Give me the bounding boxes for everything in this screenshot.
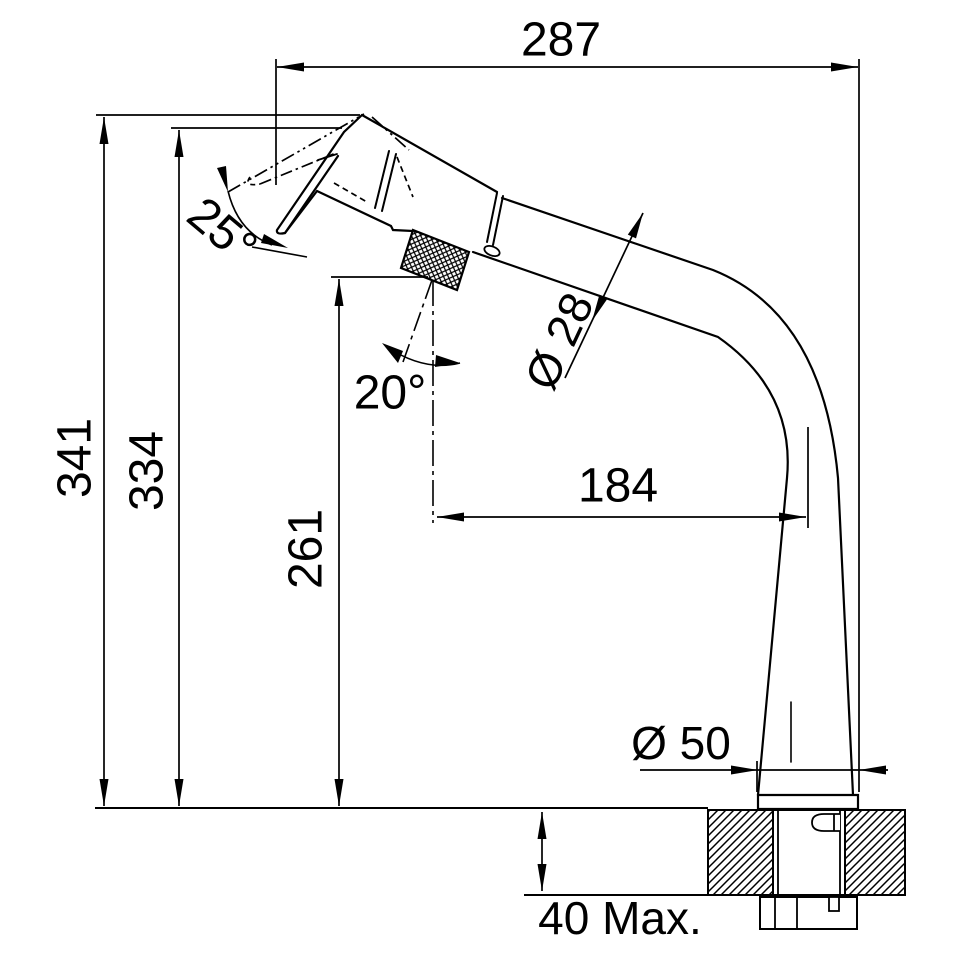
dim-label-261: 261 [280, 509, 333, 589]
dim-287-arrow-right [831, 63, 858, 72]
spray-head-bottom-edge [285, 191, 413, 233]
dim-334-arrow-up [175, 130, 184, 157]
phantom-tip-cap [248, 177, 260, 185]
faucet-outline [277, 115, 858, 809]
angle-label-20: 20° [354, 367, 427, 420]
spout-inner-edge [473, 252, 788, 795]
dim-184-arrow-right [779, 513, 806, 522]
dim-label-184: 184 [578, 460, 658, 513]
knurled-knob [401, 230, 469, 290]
dim-287-arrow-left [277, 63, 304, 72]
countertop [708, 810, 905, 895]
phantom-inner-1 [397, 157, 413, 197]
mounting-nut [760, 897, 857, 929]
dim-40max-arrow-up [538, 812, 547, 839]
dim-40max-arrow-down [538, 864, 547, 891]
angle-25-arrow-top [217, 166, 228, 192]
base-flange [758, 795, 858, 809]
phantom-head-right [372, 117, 409, 150]
knob-body [401, 230, 469, 290]
dim-334-arrow-down [175, 779, 184, 806]
hose-clip [812, 814, 840, 831]
dim-40max [524, 812, 708, 895]
counter-hatch-right [845, 810, 905, 895]
dim-label-341: 341 [49, 418, 102, 498]
dim-label-dia50: Ø 50 [631, 717, 731, 769]
dim-dia50-arrow-right [859, 766, 886, 775]
phantom-lower-edge [260, 153, 336, 184]
angle-label-25: 25° [177, 187, 267, 274]
dim-label-dia28: Ø 28 [514, 285, 603, 397]
dim-label-287: 287 [521, 14, 601, 67]
dim-184-arrow-left [437, 513, 464, 522]
dim-261 [331, 277, 428, 806]
dim-261-arrow-down [335, 779, 344, 806]
dim-341-arrow-up [100, 117, 109, 144]
dim-287 [276, 59, 859, 792]
dim-341-arrow-down [100, 779, 109, 806]
joint-ring-2 [487, 193, 503, 245]
dim-label-334: 334 [121, 431, 174, 511]
dim-label-40max: 40 Max. [538, 892, 702, 944]
counter-hatch-left [708, 810, 773, 895]
dim-261-arrow-up [335, 279, 344, 306]
angle-20-arrow-left [382, 343, 403, 363]
joint-ring-1 [375, 151, 396, 211]
angle-20-centerline-tilted [403, 280, 432, 362]
angle-25-leg [252, 247, 307, 257]
dim-dia28-arrow-up [628, 213, 643, 238]
drawing-page: 287 341 334 261 184 Ø 28 [0, 0, 960, 960]
dim-dia50-arrow-left [731, 766, 758, 775]
faucet-dimension-drawing: 287 341 334 261 184 Ø 28 [0, 0, 960, 960]
phantom-inner-2 [334, 183, 367, 202]
spray-head-face [277, 115, 362, 234]
nut-tab [829, 897, 839, 911]
